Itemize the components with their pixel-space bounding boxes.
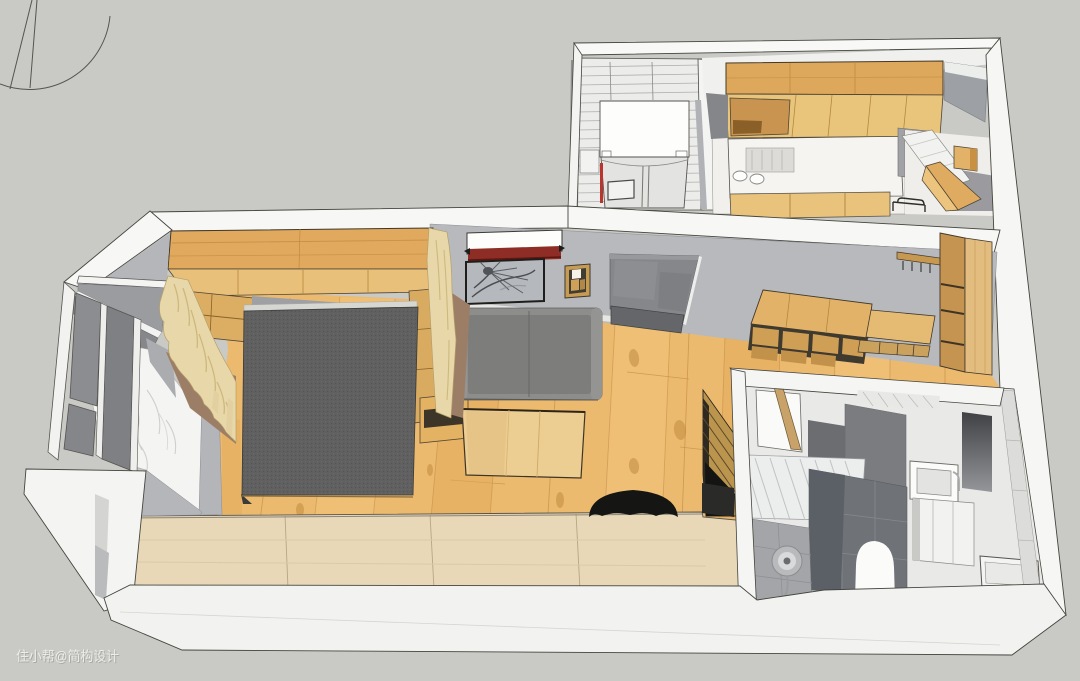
svg-text:住小帮@简构设计: 住小帮@简构设计 [16, 648, 119, 664]
